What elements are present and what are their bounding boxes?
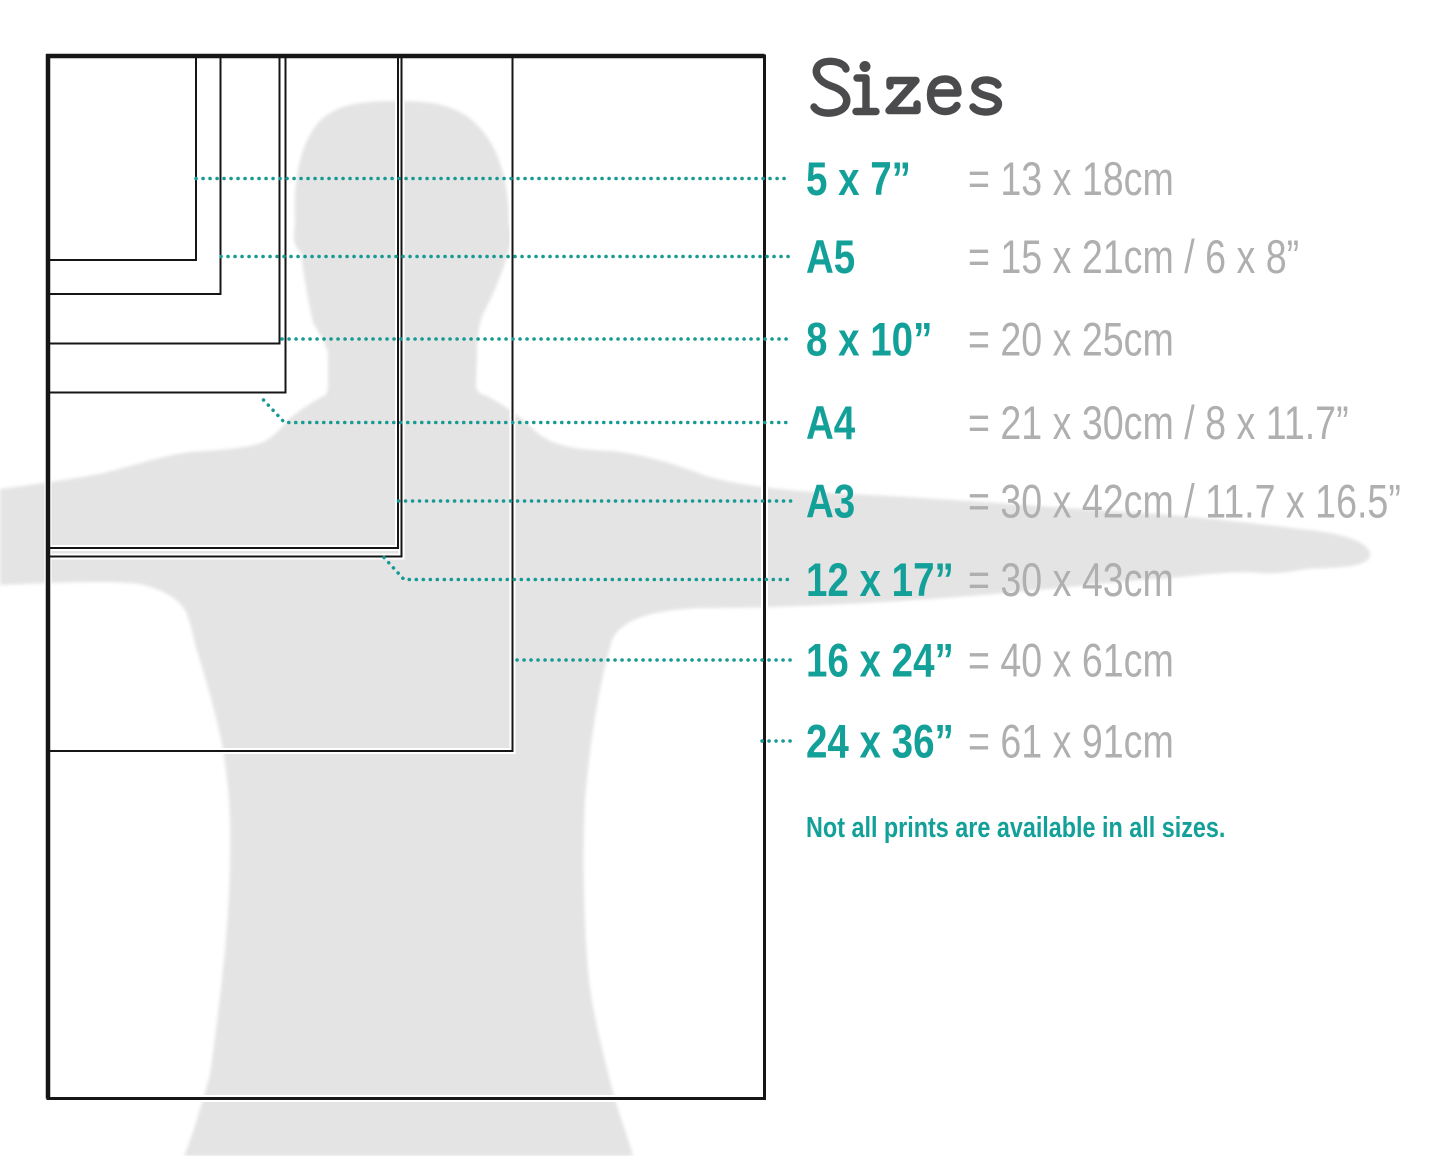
svg-text:A4: A4 <box>806 397 855 449</box>
svg-text:A3: A3 <box>806 476 855 528</box>
svg-text:16 x 24”: 16 x 24” <box>806 635 954 687</box>
svg-text:= 30 x 42cm / 11.7 x 16.5”: = 30 x 42cm / 11.7 x 16.5” <box>968 475 1401 528</box>
svg-text:12 x 17”: 12 x 17” <box>806 554 954 606</box>
svg-text:= 15 x 21cm / 6 x 8”: = 15 x 21cm / 6 x 8” <box>968 231 1299 284</box>
svg-text:= 30 x 43cm: = 30 x 43cm <box>968 554 1174 607</box>
svg-text:= 61 x 91cm: = 61 x 91cm <box>968 715 1174 768</box>
svg-text:24 x 36”: 24 x 36” <box>806 716 954 768</box>
svg-text:= 20 x 25cm: = 20 x 25cm <box>968 313 1174 366</box>
svg-text:= 21 x 30cm / 8 x 11.7”: = 21 x 30cm / 8 x 11.7” <box>968 397 1349 450</box>
svg-text:= 40 x 61cm: = 40 x 61cm <box>968 634 1174 687</box>
svg-text:5 x 7”: 5 x 7” <box>806 153 911 205</box>
svg-text:8 x 10”: 8 x 10” <box>806 314 932 366</box>
svg-text:A5: A5 <box>806 231 855 283</box>
svg-text:Not all prints are available i: Not all prints are available in all size… <box>806 811 1225 844</box>
svg-text:= 13 x 18cm: = 13 x 18cm <box>968 153 1174 206</box>
